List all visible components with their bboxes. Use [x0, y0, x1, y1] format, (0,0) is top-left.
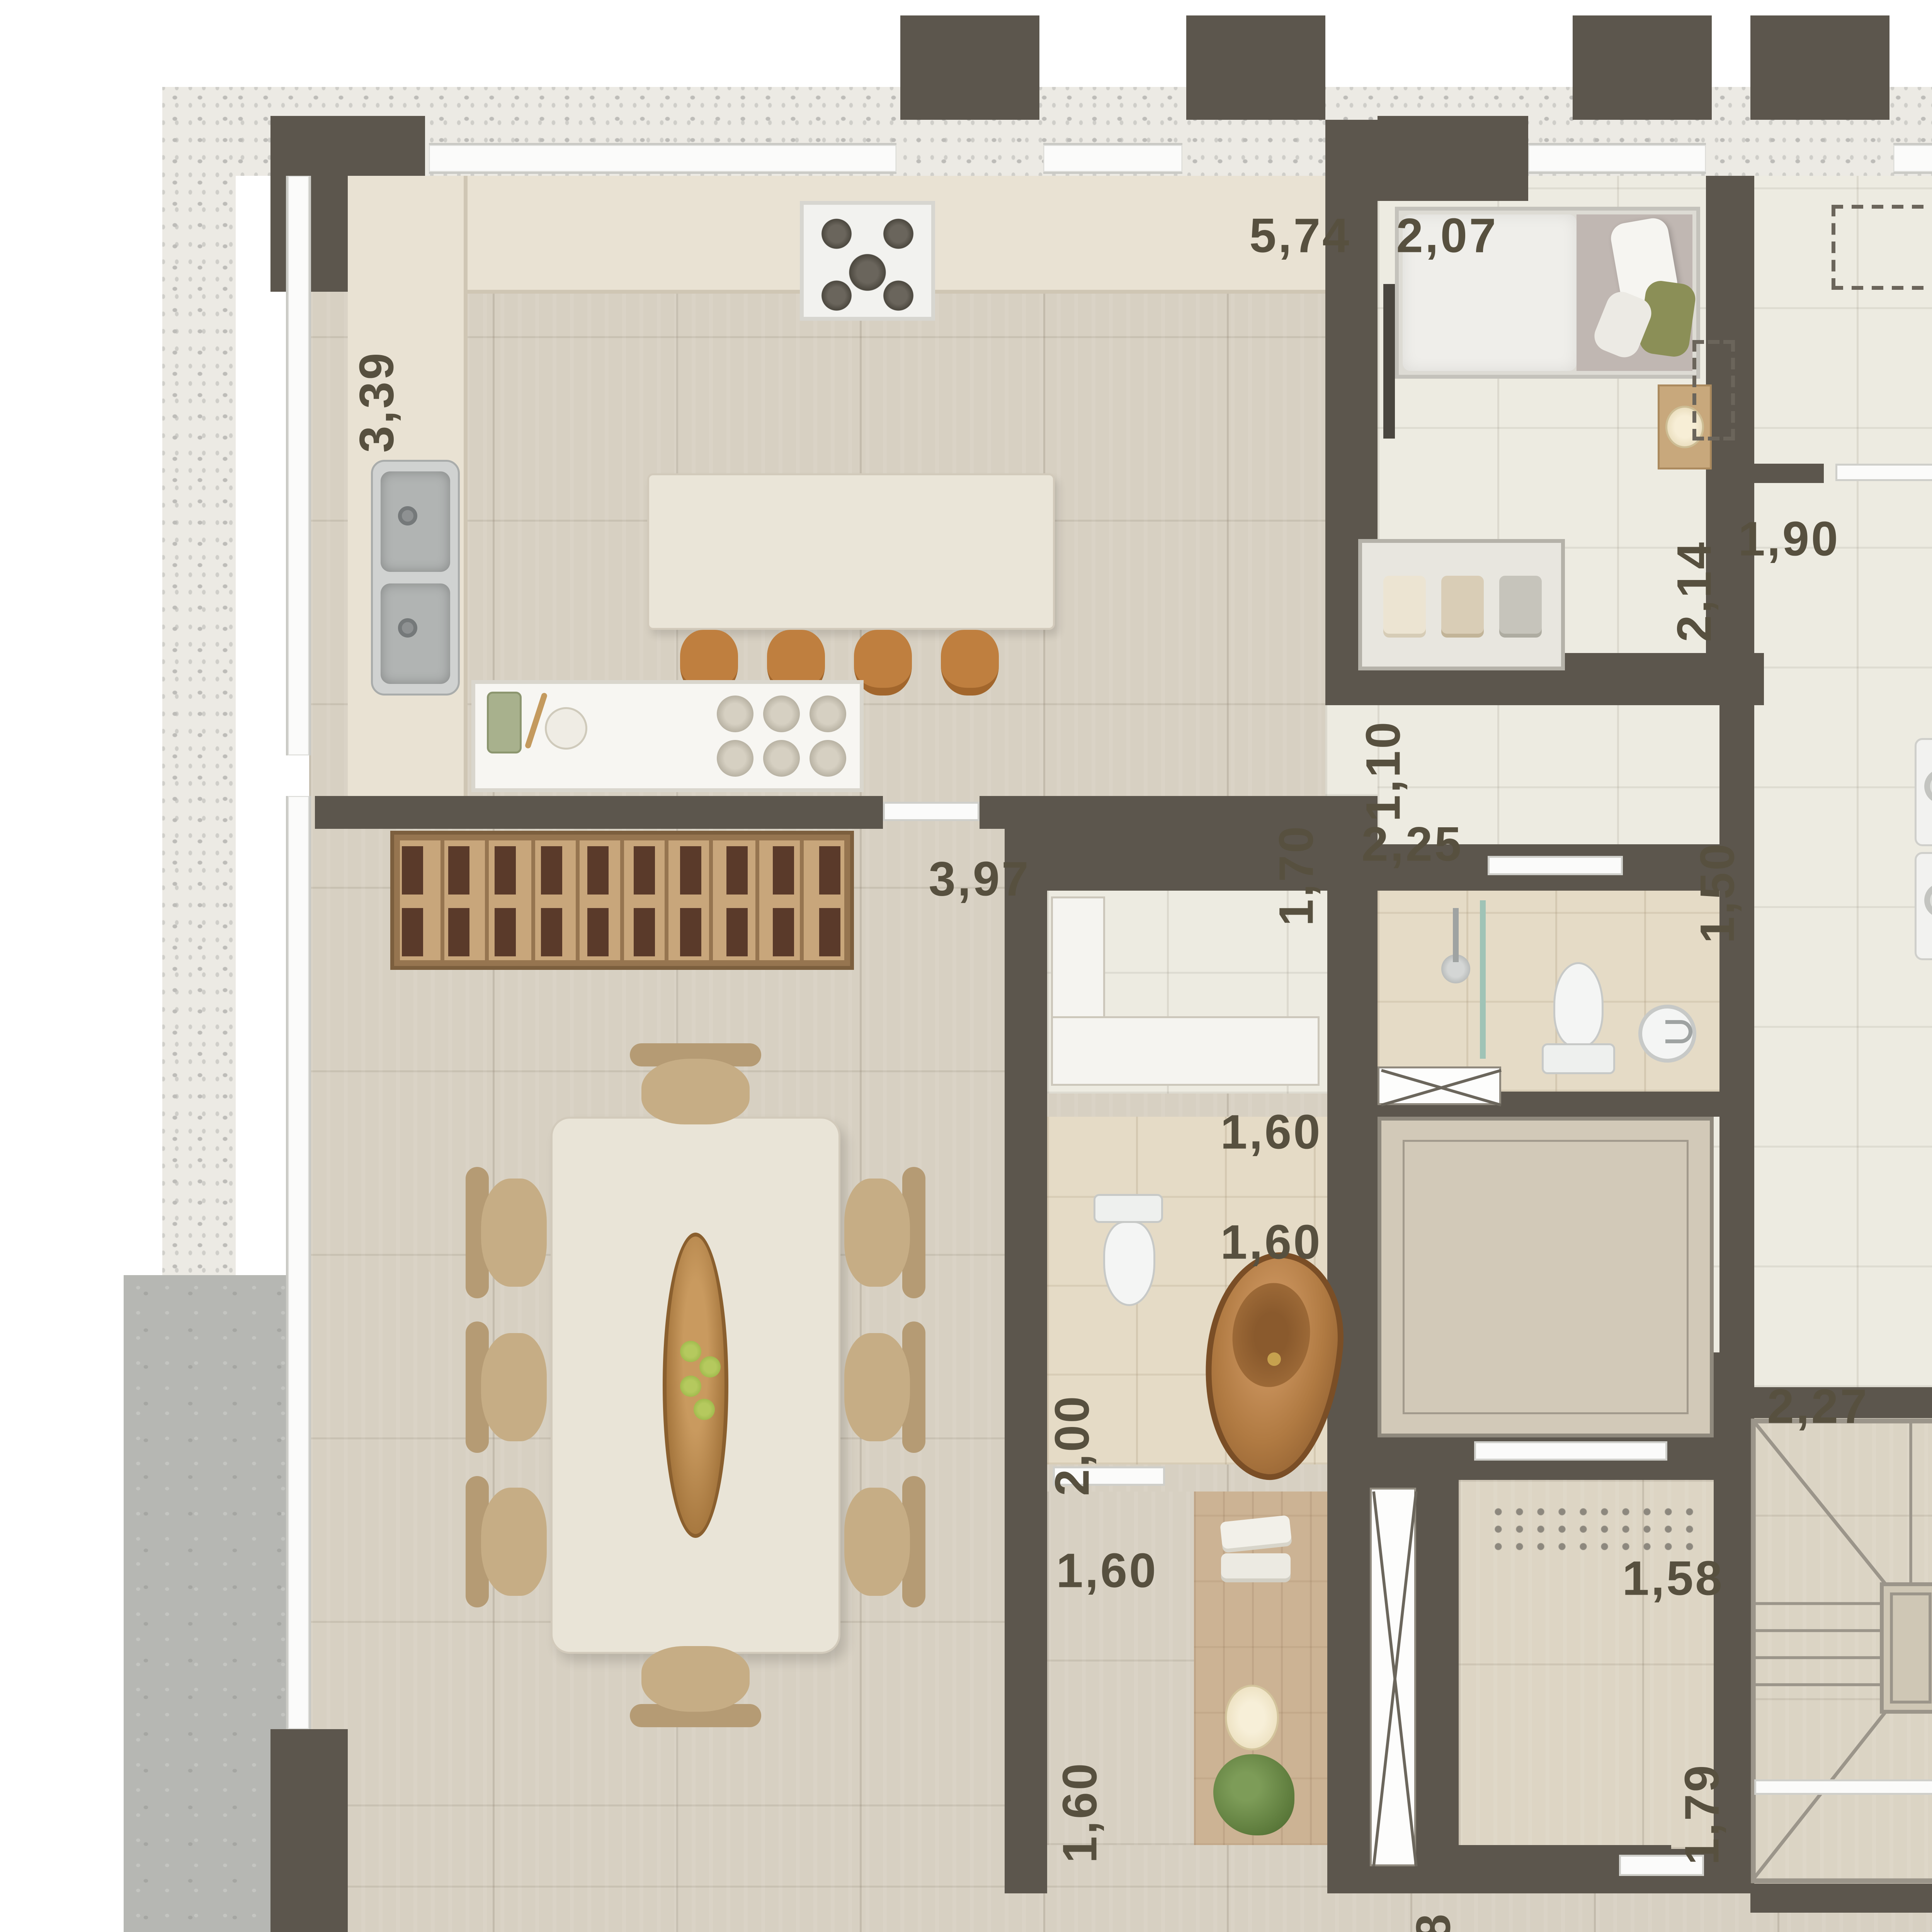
closet-counter-left [1051, 896, 1105, 1024]
dining-chair-l2 [466, 1314, 547, 1461]
coffee-machine [487, 692, 522, 753]
door-service-corridor [1835, 464, 1932, 481]
wall-closet-left [1005, 796, 1047, 1893]
apple-2 [699, 1356, 721, 1378]
kitchen-island [647, 473, 1055, 630]
plate-4 [717, 740, 753, 777]
window-top-bedroom [1528, 143, 1706, 174]
wall-stub-4 [1750, 15, 1889, 120]
closet-counter-bottom [1051, 1016, 1320, 1086]
appliance-dashed-2 [1692, 340, 1735, 440]
wall-kitchen-bottom-a [315, 796, 883, 829]
window-left-upper [286, 176, 311, 755]
dim-bath-width: 1,60 [1220, 1220, 1322, 1269]
window-top-kitchen2 [1043, 143, 1182, 174]
cooktop-burner-1 [819, 216, 854, 251]
kitchen-faucet-2 [398, 618, 417, 638]
door-elevator-pocket [1474, 1441, 1667, 1461]
dim-core-length: 6,48 [1412, 1912, 1460, 1932]
floor-plan: 3,39 5,74 2,07 1,80 1,79 2,14 1,90 5,29 … [0, 0, 1932, 1932]
powder-showerhead-stem [1453, 908, 1459, 962]
spa-towel-2 [1221, 1553, 1291, 1578]
door-kitchen-dining [883, 802, 980, 821]
bath-toilet-tank [1094, 1194, 1163, 1223]
dim-kitchen-depth: 3,39 [355, 351, 403, 452]
window-top-kitchen [429, 143, 896, 174]
dim-powder-width: 2,25 [1361, 822, 1463, 871]
dim-hall-width: 1,10 [1361, 720, 1410, 821]
wall-stub-1 [900, 15, 1039, 120]
wall-terrace-pillar-left [270, 1729, 348, 1932]
wall-stub-2 [1186, 15, 1325, 120]
dim-dining-wall: 3,97 [929, 857, 1030, 905]
plate-6 [810, 740, 846, 777]
apple-4 [694, 1399, 715, 1420]
dining-chair-bottom [622, 1646, 769, 1727]
dining-chair-top [622, 1043, 769, 1124]
staircase [1750, 1418, 1932, 1917]
powder-sink-faucet [1665, 1020, 1692, 1043]
dining-chair-l1 [466, 1159, 547, 1306]
dim-kitchen-width: 5,74 [1249, 214, 1351, 262]
dining-chair-r3 [844, 1468, 925, 1615]
cooktop-burner-3 [846, 251, 889, 294]
dim-bedroom-width: 2,07 [1396, 214, 1498, 262]
powder-cabinet [1378, 1066, 1501, 1105]
window-left-mid [286, 796, 311, 1729]
dining-chair-l3 [466, 1468, 547, 1615]
balcony-slab-left [162, 87, 236, 1275]
door-powder [1488, 856, 1623, 875]
spa-lamp [1225, 1685, 1279, 1750]
powder-glass-partition [1480, 900, 1486, 1059]
terrace-planter-left [124, 1275, 294, 1932]
dim-bath-depth: 2,00 [1050, 1394, 1099, 1496]
dim-closet-depth: 1,70 [1274, 824, 1323, 926]
bath-toilet-bowl [1103, 1221, 1155, 1306]
plate-2 [763, 696, 800, 732]
dim-closet-corridor: 1,90 [1738, 517, 1840, 565]
dim-spa-width: 1,60 [1056, 1549, 1158, 1597]
cooktop-burner-2 [881, 216, 916, 251]
cooktop-burner-4 [819, 278, 854, 313]
appliance-dashed-1 [1832, 205, 1932, 290]
door-terrace-right-a [1754, 1779, 1932, 1795]
shaft-x [1370, 1488, 1416, 1866]
dim-closet-width: 1,60 [1220, 1110, 1322, 1158]
dining-chair-r1 [844, 1159, 925, 1306]
wall-bedroom-top [1378, 116, 1528, 201]
towel-stack-1 [1383, 576, 1426, 634]
dim-powder-depth: 1,50 [1696, 842, 1744, 943]
serving-plate [545, 707, 587, 750]
wall-right-spine [1719, 705, 1754, 1352]
dim-shower-width: 1,58 [1622, 1556, 1724, 1605]
shower-drain-grid [1488, 1503, 1696, 1555]
plate-1 [717, 696, 753, 732]
dim-rear-closet: 2,27 [1767, 1384, 1869, 1433]
powder-toilet-bowl [1553, 962, 1604, 1047]
dim-spa-depth: 1,60 [1058, 1761, 1106, 1863]
cooktop-burner-5 [881, 278, 916, 313]
dim-shower-depth: 1,79 [1680, 1763, 1728, 1865]
elevator-core-inner [1403, 1140, 1689, 1414]
dining-chair-r2 [844, 1314, 925, 1461]
powder-toilet-tank [1542, 1043, 1615, 1074]
window-top-laundry [1893, 143, 1932, 174]
plate-5 [763, 740, 800, 777]
apple-3 [680, 1376, 701, 1397]
wall-stub-3 [1573, 15, 1712, 120]
dim-bedroom-depth: 2,14 [1672, 540, 1721, 642]
bedroom-tv [1383, 284, 1395, 439]
plate-3 [810, 696, 846, 732]
tub-faucet [1267, 1352, 1281, 1366]
towel-stack-3 [1499, 576, 1542, 634]
island-stool-4 [941, 630, 999, 696]
wall-laundry-div-a [1754, 464, 1824, 483]
towel-stack-2 [1441, 576, 1484, 634]
kitchen-faucet-1 [398, 506, 417, 526]
wine-bottles-overlay [390, 831, 854, 970]
apple-1 [680, 1341, 701, 1362]
